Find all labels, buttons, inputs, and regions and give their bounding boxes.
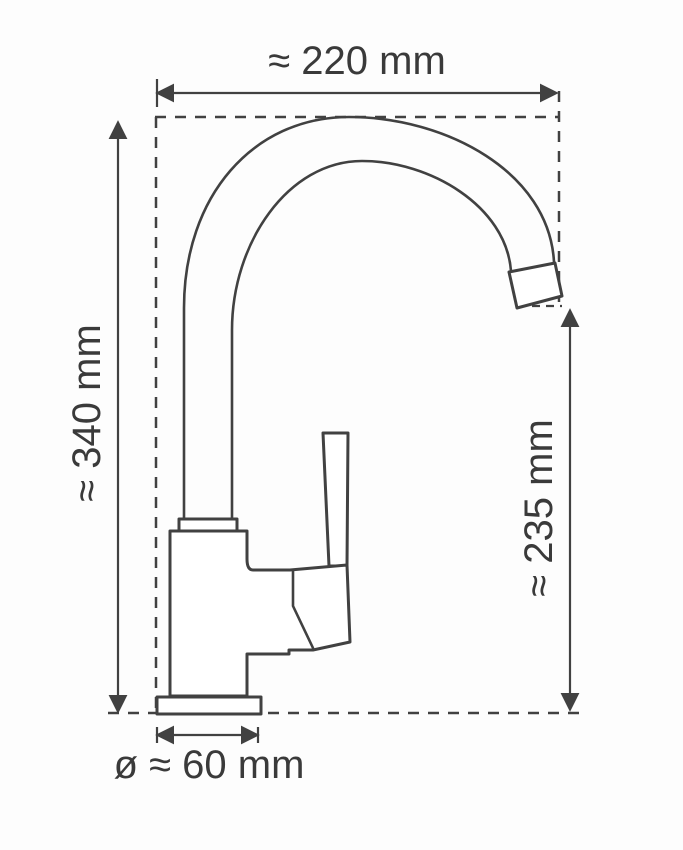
- spout-nozzle: [509, 263, 562, 308]
- base-plate: [157, 697, 261, 714]
- diagram-canvas: ≈ 220 mm ≈ 340 mm ≈ 235 mm ø ≈ 60 mm: [0, 0, 683, 850]
- dimension-label-base-diameter: ø ≈ 60 mm: [114, 743, 305, 787]
- dimension-width: ≈ 220 mm: [157, 39, 556, 107]
- spout-outer-curve-line: [184, 117, 554, 521]
- dimension-base-diameter: ø ≈ 60 mm: [114, 727, 305, 787]
- faucet-drawing: [157, 117, 562, 714]
- dimension-label-height: ≈ 340 mm: [65, 324, 109, 502]
- dimension-label-spout-height: ≈ 235 mm: [517, 419, 561, 597]
- lever-handle: [323, 433, 348, 566]
- spout-inner-curve-line: [232, 161, 511, 521]
- dimension-height: ≈ 340 mm: [65, 123, 118, 711]
- pipe-collar: [179, 519, 237, 531]
- dimension-label-width: ≈ 220 mm: [268, 39, 446, 83]
- faucet-dimension-diagram: ≈ 220 mm ≈ 340 mm ≈ 235 mm ø ≈ 60 mm: [0, 0, 683, 850]
- faucet-body: [170, 531, 350, 696]
- dimension-spout-height: ≈ 235 mm: [517, 306, 570, 709]
